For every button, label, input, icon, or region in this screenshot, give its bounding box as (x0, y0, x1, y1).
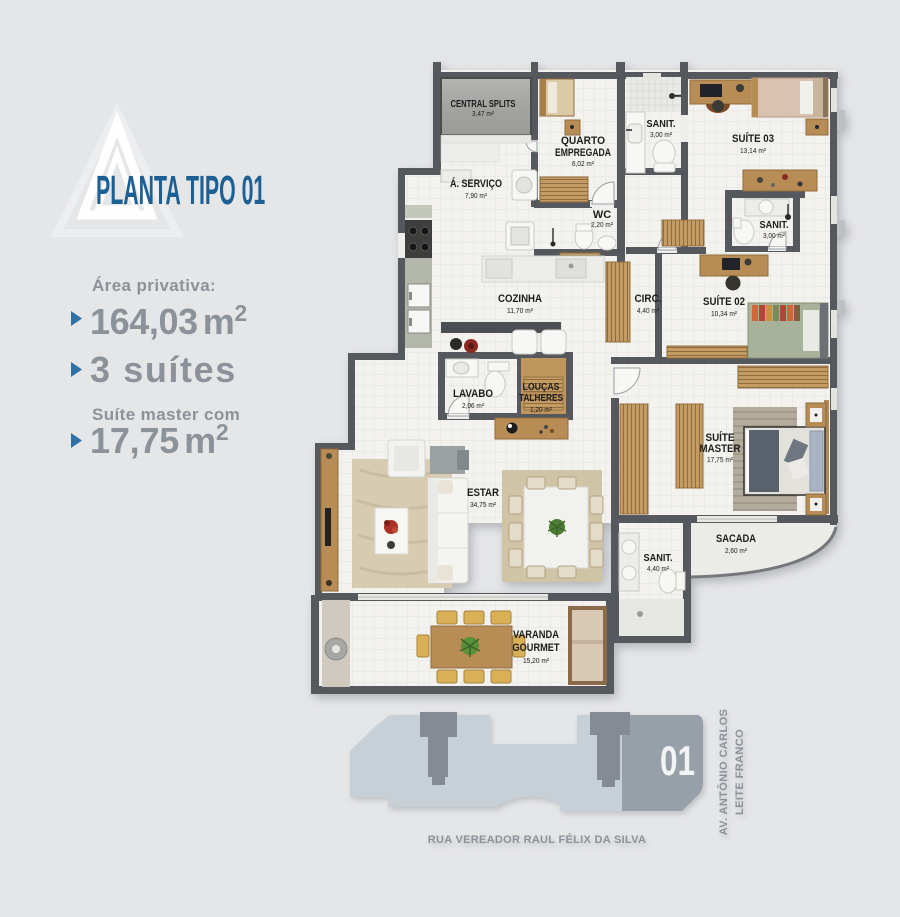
svg-text:3,47 m²: 3,47 m² (472, 111, 495, 118)
svg-text:ESTAR: ESTAR (467, 487, 499, 499)
svg-text:AV. ANTÔNIO CARLOS: AV. ANTÔNIO CARLOS (717, 709, 730, 836)
svg-text:LOUÇAS: LOUÇAS (523, 382, 560, 393)
svg-text:SANIT.: SANIT. (647, 119, 676, 130)
svg-text:01: 01 (660, 737, 695, 785)
svg-text:LEITE FRANCO: LEITE FRANCO (734, 729, 746, 815)
svg-text:10,34 m²: 10,34 m² (711, 311, 738, 318)
svg-text:4,40 m²: 4,40 m² (647, 566, 670, 573)
svg-text:SANIT.: SANIT. (644, 553, 673, 564)
svg-text:17,75m2: 17,75m2 (90, 419, 229, 461)
svg-text:11,70 m²: 11,70 m² (507, 308, 534, 315)
svg-text:164,03m2: 164,03m2 (90, 300, 247, 342)
svg-text:34,75 m²: 34,75 m² (470, 502, 497, 509)
svg-text:WC: WC (593, 209, 611, 221)
svg-text:SUÍTE 02: SUÍTE 02 (703, 295, 745, 308)
svg-text:2,20 m²: 2,20 m² (591, 222, 614, 229)
svg-text:RUA VEREADOR RAUL FÉLIX DA SIL: RUA VEREADOR RAUL FÉLIX DA SILVA (428, 833, 646, 846)
svg-text:MASTER: MASTER (700, 443, 741, 455)
svg-text:SANIT.: SANIT. (760, 220, 789, 231)
svg-text:4,40 m²: 4,40 m² (637, 308, 660, 315)
svg-text:PLANTA TIPO 01: PLANTA TIPO 01 (96, 166, 265, 212)
svg-text:SUÍTE 03: SUÍTE 03 (732, 132, 774, 145)
svg-text:3,00 m²: 3,00 m² (650, 132, 673, 139)
svg-text:VARANDA: VARANDA (513, 629, 559, 641)
svg-text:13,14 m²: 13,14 m² (740, 148, 767, 155)
svg-text:3 suítes: 3 suítes (90, 349, 237, 390)
svg-text:7,90 m²: 7,90 m² (465, 193, 488, 200)
svg-text:EMPREGADA: EMPREGADA (555, 147, 611, 159)
svg-text:17,75 m²: 17,75 m² (707, 457, 734, 464)
svg-text:LAVABO: LAVABO (453, 388, 493, 400)
svg-text:SACADA: SACADA (716, 533, 756, 545)
svg-text:6,02 m²: 6,02 m² (572, 161, 595, 168)
svg-text:CENTRAL SPLITS: CENTRAL SPLITS (451, 99, 516, 110)
svg-text:3,00 m²: 3,00 m² (763, 233, 786, 240)
svg-text:QUARTO: QUARTO (561, 135, 605, 147)
svg-text:Á. SERVIÇO: Á. SERVIÇO (450, 177, 502, 190)
svg-text:2,06 m²: 2,06 m² (462, 403, 485, 410)
svg-text:Área privativa:: Área privativa: (92, 276, 216, 295)
svg-text:2,60 m²: 2,60 m² (725, 548, 748, 555)
svg-text:15,20 m²: 15,20 m² (523, 658, 550, 665)
svg-text:1,20 m²: 1,20 m² (530, 407, 553, 414)
svg-text:TALHERES: TALHERES (519, 393, 563, 404)
svg-text:COZINHA: COZINHA (498, 293, 542, 305)
svg-text:GOURMET: GOURMET (513, 642, 560, 654)
svg-text:CIRC.: CIRC. (635, 293, 662, 305)
